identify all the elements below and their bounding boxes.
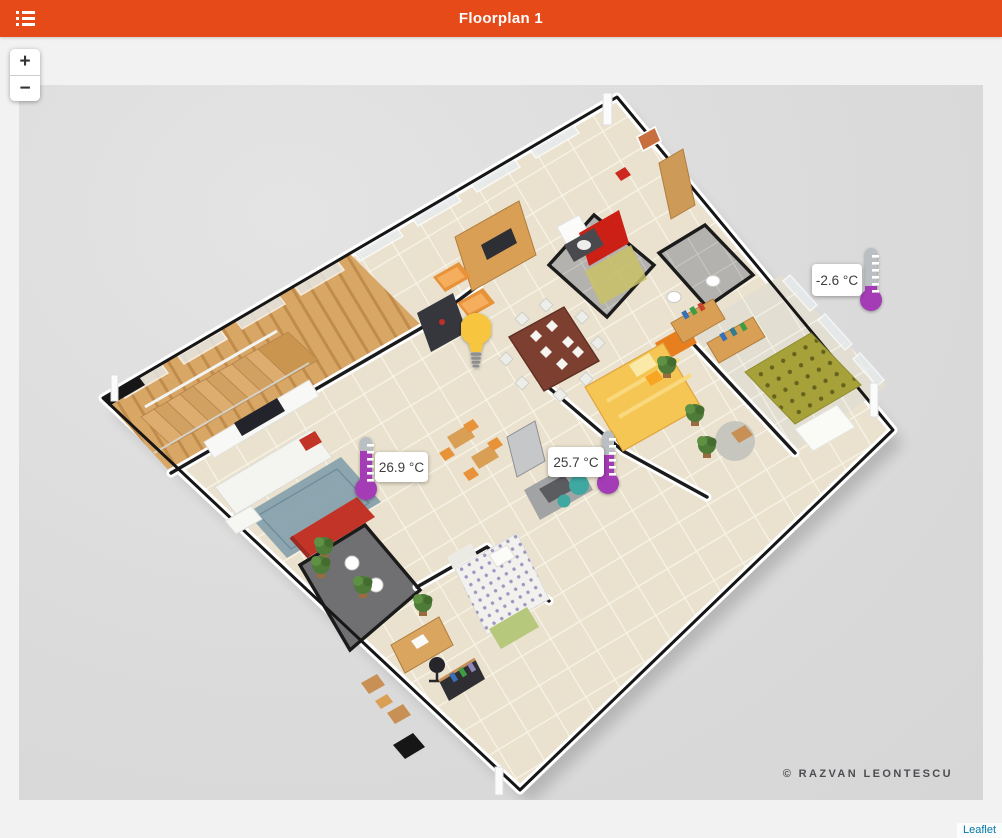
zoom-control: + −	[10, 49, 40, 101]
page-title: Floorplan 1	[0, 10, 1002, 27]
floorplan-watermark: © Razvan Leontescu	[783, 768, 953, 780]
temperature-label: -2.6 °C	[812, 264, 862, 296]
leaflet-link[interactable]: Leaflet	[963, 824, 996, 836]
map-container[interactable]: © Razvan Leontescu + −	[0, 37, 1002, 838]
list-menu-icon	[16, 11, 38, 26]
floorplan-render	[19, 85, 983, 800]
zoom-in-button[interactable]: +	[10, 49, 40, 75]
floorplan-image: © Razvan Leontescu	[19, 85, 983, 800]
temperature-label: 26.9 °C	[375, 452, 428, 482]
light-marker[interactable]	[461, 311, 491, 368]
leaflet-attribution: Leaflet	[957, 823, 1002, 838]
app-bar: Floorplan 1	[0, 0, 1002, 37]
menu-button[interactable]	[14, 8, 40, 29]
temperature-label: 25.7 °C	[548, 447, 604, 477]
zoom-out-button[interactable]: −	[10, 75, 40, 101]
light-bulb-icon	[461, 311, 491, 368]
